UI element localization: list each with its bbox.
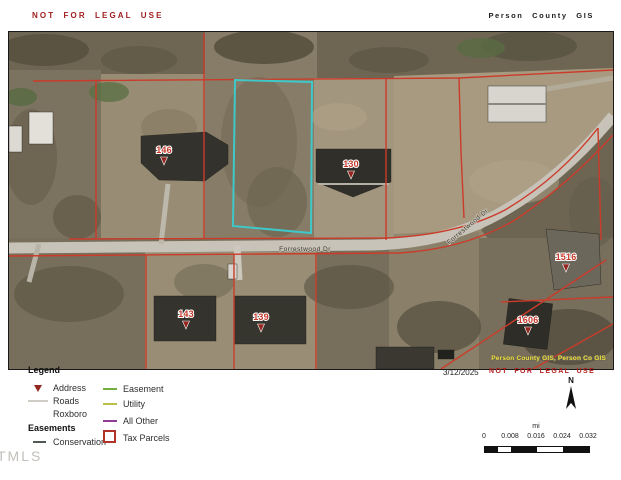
scale-tick: 0.024 [553,433,571,440]
all-other-line-icon [103,420,117,422]
map-date: 3/12/2025 [443,368,479,377]
map-attribution: Person County GIS, Person Co GIS [491,355,606,362]
street-label: Forrestwood Dr [279,246,331,253]
building-139 [234,296,306,344]
legend-easements-header: Easements [28,423,76,433]
legend-label: Utility [123,399,145,409]
legend-label: Conservation [53,437,106,447]
building-white-house [29,112,53,144]
utility-line-icon [103,403,117,405]
tmls-watermark: TMLS [0,448,42,464]
address-label: 1606 [518,315,539,325]
legend-label: Address [53,383,86,393]
scale-bar: mi 0 0.008 0.016 0.024 0.032 [478,423,602,457]
easement-line-icon [103,388,117,390]
bottom-disclaimer: NOT FOR LEGAL USE [489,368,595,375]
north-label: N [559,376,583,385]
building-146 [141,132,228,181]
address-pin-icon [34,385,42,392]
vehicle [438,350,454,359]
legend-label: All Other [123,416,158,426]
app-title: Person County GIS [488,11,594,20]
tax-parcels-square-icon [103,430,116,443]
address-label: 143 [178,309,194,319]
legend-label: Easement [123,384,164,394]
scale-tick: 0 [482,433,486,440]
address-label: 139 [253,312,269,322]
legend-label: Roads [53,396,79,406]
top-disclaimer: NOT FOR LEGAL USE [32,11,164,20]
legend-label: Roxboro [53,409,87,419]
map-viewport[interactable]: Forrestwood Dr Forrestwood Dr 146 130 14… [8,31,614,370]
gis-map-page: NOT FOR LEGAL USE Person County GIS [0,0,621,480]
address-label: 1516 [556,252,577,262]
scale-tick: 0.032 [579,433,597,440]
conservation-line-icon [33,441,46,443]
aerial-imagery[interactable]: Forrestwood Dr Forrestwood Dr 146 130 14… [9,32,613,369]
scale-unit: mi [478,423,594,430]
address-label: 130 [343,159,359,169]
scale-tick: 0.008 [501,433,519,440]
roads-line-icon [28,400,48,402]
scale-tick: 0.016 [527,433,545,440]
legend-title: Legend [28,365,60,375]
address-label: 146 [156,145,172,155]
vehicle [228,264,237,279]
legend-label: Tax Parcels [123,433,170,443]
north-arrow: N [559,376,583,416]
north-arrow-icon [559,385,583,411]
scale-bar-graphic [484,446,590,453]
